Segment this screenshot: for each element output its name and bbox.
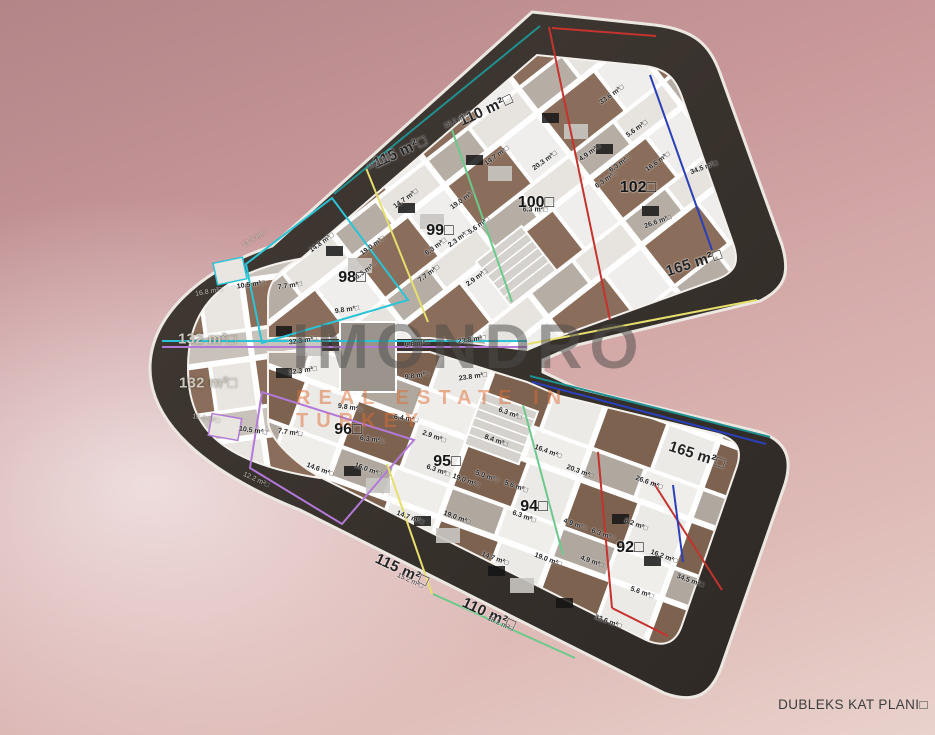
balcony-box-bottom: [208, 414, 241, 441]
core-block: [340, 322, 396, 392]
floor-plan-stage: 33.6 m²□5.6 m²□4.9 m²□16.6 m²□6.3 m²□6.3…: [0, 0, 935, 735]
plan-caption: DUBLEKS KAT PLANI□: [778, 697, 928, 712]
building-graphic: [0, 0, 935, 735]
